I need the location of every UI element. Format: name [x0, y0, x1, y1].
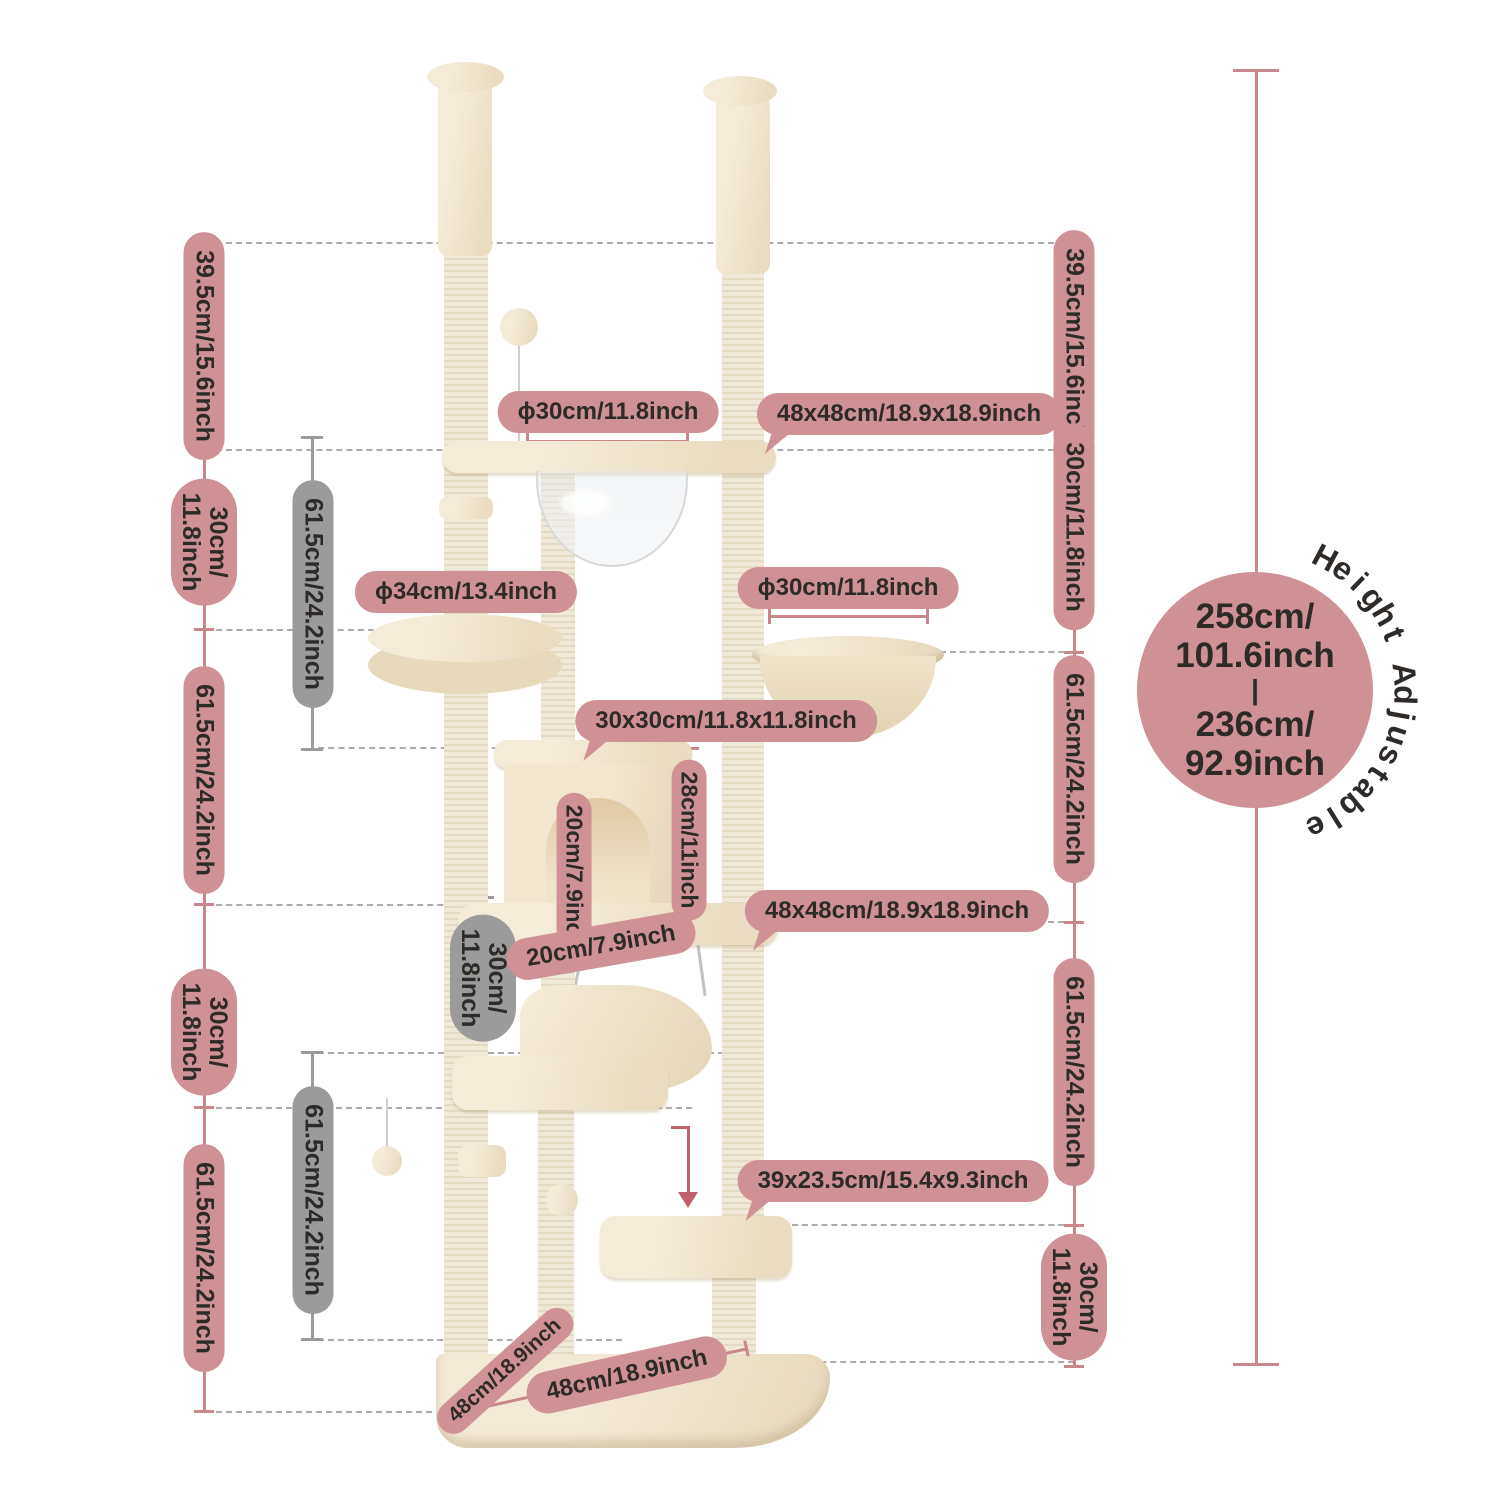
small-platform: [452, 1056, 668, 1110]
tick: [1233, 1363, 1279, 1366]
guide-base-bottom: [196, 1411, 462, 1413]
round-platform: [368, 614, 562, 662]
pill-line: 30cm/: [204, 983, 231, 1082]
pill-line: 11.8inch: [177, 983, 204, 1082]
measure-pill: 30cm/ 11.8inch: [171, 969, 237, 1096]
pill-line: 30cm/: [204, 493, 231, 592]
step-arrow-head: [678, 1192, 698, 1208]
measure-pill: 30cm/ 11.8inch: [450, 915, 516, 1042]
pill-line: 11.8inch: [177, 493, 204, 592]
callout-condo-height: 28cm/11inch: [672, 760, 707, 921]
pill-line: 30cm/: [1074, 1248, 1101, 1347]
callout-condo-top: 30x30cm/11.8x11.8inch: [575, 700, 877, 742]
callout-mid-platform: 48x48cm/18.9x18.9inch: [745, 890, 1049, 932]
tick: [1064, 921, 1084, 924]
measure-pill: 30cm/ 11.8inch: [171, 479, 237, 606]
dome-highlight: [560, 490, 610, 516]
tick: [301, 1051, 323, 1054]
measure-segment: [769, 615, 929, 618]
badge-min-in: 92.9inch: [1185, 744, 1325, 783]
badge-min-cm: 236cm/: [1196, 705, 1315, 744]
measure-pill: 61.5cm/24.2inch: [1054, 958, 1095, 1186]
bubble-text: 48x48cm/18.9x18.9inch: [765, 897, 1029, 924]
curved-letter: j: [1384, 708, 1422, 723]
step-platform: [600, 1216, 792, 1278]
hammock-chain-right: [696, 944, 706, 996]
tick: [301, 748, 323, 751]
step-arrow-line: [687, 1126, 690, 1194]
guide-round-platform: [196, 629, 374, 631]
dimension-diagram: 39.5cm/15.6inch 30cm/ 11.8inch 61.5cm/24…: [0, 0, 1500, 1500]
bubble-text: 39x23.5cm/15.4x9.3inch: [758, 1167, 1029, 1194]
pole-left-collar-2: [458, 1145, 506, 1177]
toy-ball-left: [372, 1146, 402, 1176]
bubble-text: 48x48cm/18.9x18.9inch: [777, 400, 1041, 427]
pole-left-sleeve: [438, 80, 492, 256]
toy-ball-top: [500, 308, 538, 346]
pole-right-ceiling-cap: [703, 76, 777, 106]
bubble-text: 30x30cm/11.8x11.8inch: [595, 707, 857, 734]
pole-left-ceiling-cap: [427, 62, 504, 92]
callout-basket: ϕ30cm/11.8inch: [738, 567, 959, 609]
callout-top-hole: ϕ30cm/11.8inch: [498, 391, 719, 433]
pole-left-collar: [439, 497, 493, 519]
pill-line: 11.8inch: [1047, 1248, 1074, 1347]
measure-pill: 61.5cm/24.2inch: [184, 1144, 225, 1372]
top-platform: [442, 441, 776, 473]
badge-divider: |: [1251, 677, 1259, 702]
toy-string: [386, 1098, 388, 1150]
measure-pill: 30cm/11.8inch: [1054, 424, 1095, 630]
pill-line: 11.8inch: [456, 929, 483, 1028]
tick: [1064, 651, 1084, 654]
measure-pill: 61.5cm/24.2inch: [184, 666, 225, 894]
tick: [768, 608, 771, 624]
toy-ball-middle: [546, 1184, 578, 1216]
badge-max-cm: 258cm/: [1196, 597, 1315, 636]
tick: [926, 608, 929, 624]
tick: [1064, 1224, 1084, 1227]
tick: [194, 1106, 214, 1109]
curved-letter: d: [1386, 685, 1424, 706]
tick: [1233, 69, 1279, 72]
tick: [301, 1338, 323, 1341]
measure-pill: 30cm/ 11.8inch: [1041, 1234, 1107, 1361]
measure-pill: 61.5cm/24.2inch: [293, 480, 334, 708]
pole-right-sleeve: [716, 96, 770, 274]
tick: [194, 903, 214, 906]
height-range-badge: 258cm/ 101.6inch | 236cm/ 92.9inch: [1137, 572, 1373, 808]
measure-pill: 61.5cm/24.2inch: [1054, 655, 1095, 883]
callout-step-platform: 39x23.5cm/15.4x9.3inch: [738, 1160, 1049, 1202]
guide-basket: [940, 651, 1074, 653]
measure-pill: 61.5cm/24.2inch: [293, 1086, 334, 1314]
cat-tree-pole-left: [444, 250, 488, 1362]
tick: [1064, 1365, 1084, 1368]
callout-round-platform: ϕ34cm/13.4inch: [355, 571, 577, 613]
pill-line: 30cm/: [483, 929, 510, 1028]
callout-top-platform: 48x48cm/18.9x18.9inch: [757, 393, 1061, 435]
badge-max-in: 101.6inch: [1175, 636, 1335, 675]
tick: [194, 1410, 214, 1413]
measure-pill: 39.5cm/15.6inch: [184, 232, 225, 460]
guide-step-platform: [792, 1224, 1074, 1226]
guide-ceiling: [196, 242, 1074, 244]
tick: [194, 628, 214, 631]
curved-letter: A: [1385, 661, 1424, 688]
tick: [301, 436, 323, 439]
